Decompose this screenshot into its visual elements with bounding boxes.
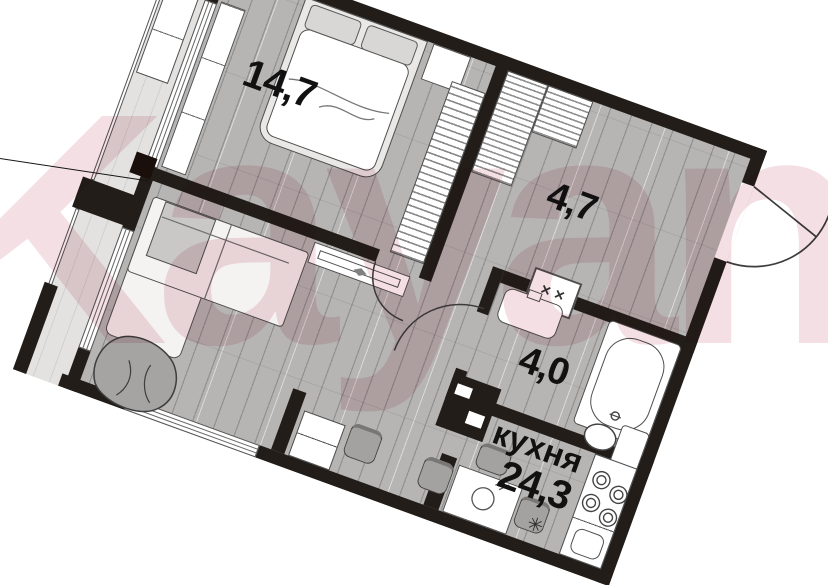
beanbag-icon bbox=[84, 327, 187, 422]
entrance-door-leaf bbox=[745, 187, 825, 237]
tv-mount bbox=[352, 266, 368, 278]
bathroom-door-arc bbox=[394, 285, 484, 375]
sofa-cushion-lines bbox=[141, 202, 295, 321]
bedroom-door-arc bbox=[360, 262, 419, 321]
apartment-floorplan: ✕ ✕ ✳ bbox=[0, 0, 780, 585]
entrance-door-arc bbox=[727, 187, 828, 290]
plan-symbols-layer bbox=[0, 0, 780, 585]
floorplan-image: ✕ ✕ ✳ bbox=[0, 0, 828, 585]
